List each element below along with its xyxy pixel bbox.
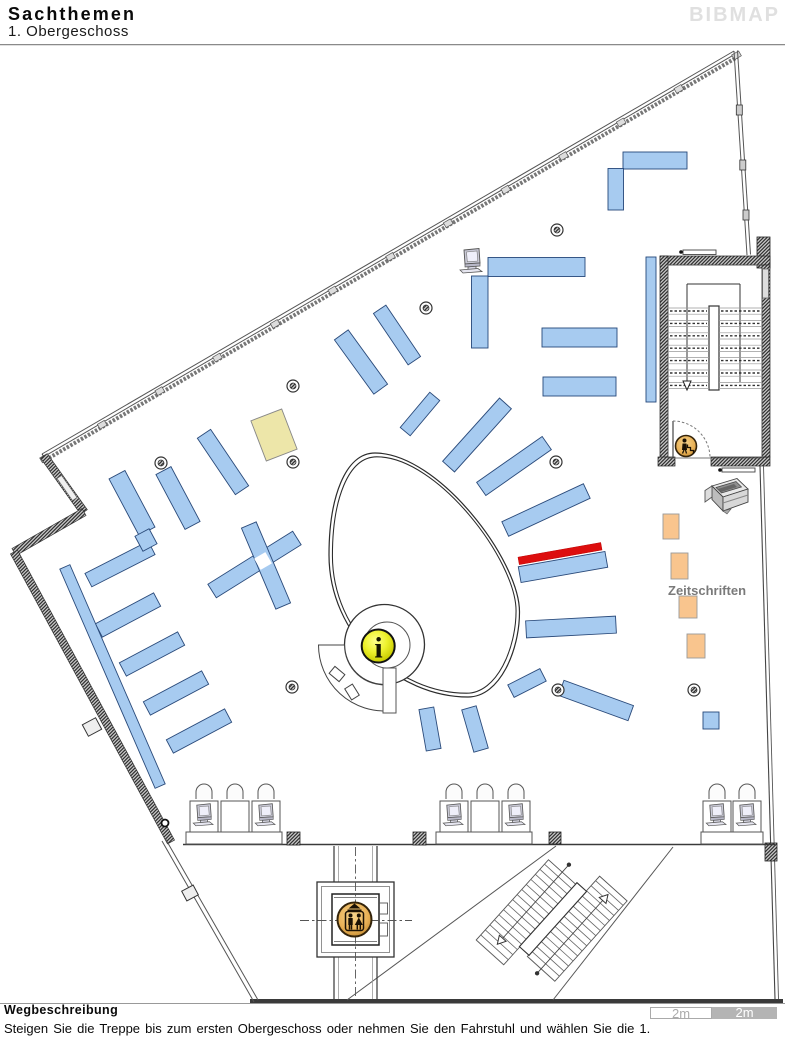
svg-text:Zeitschriften: Zeitschriften [668, 583, 746, 598]
svg-text:i: i [374, 632, 382, 665]
